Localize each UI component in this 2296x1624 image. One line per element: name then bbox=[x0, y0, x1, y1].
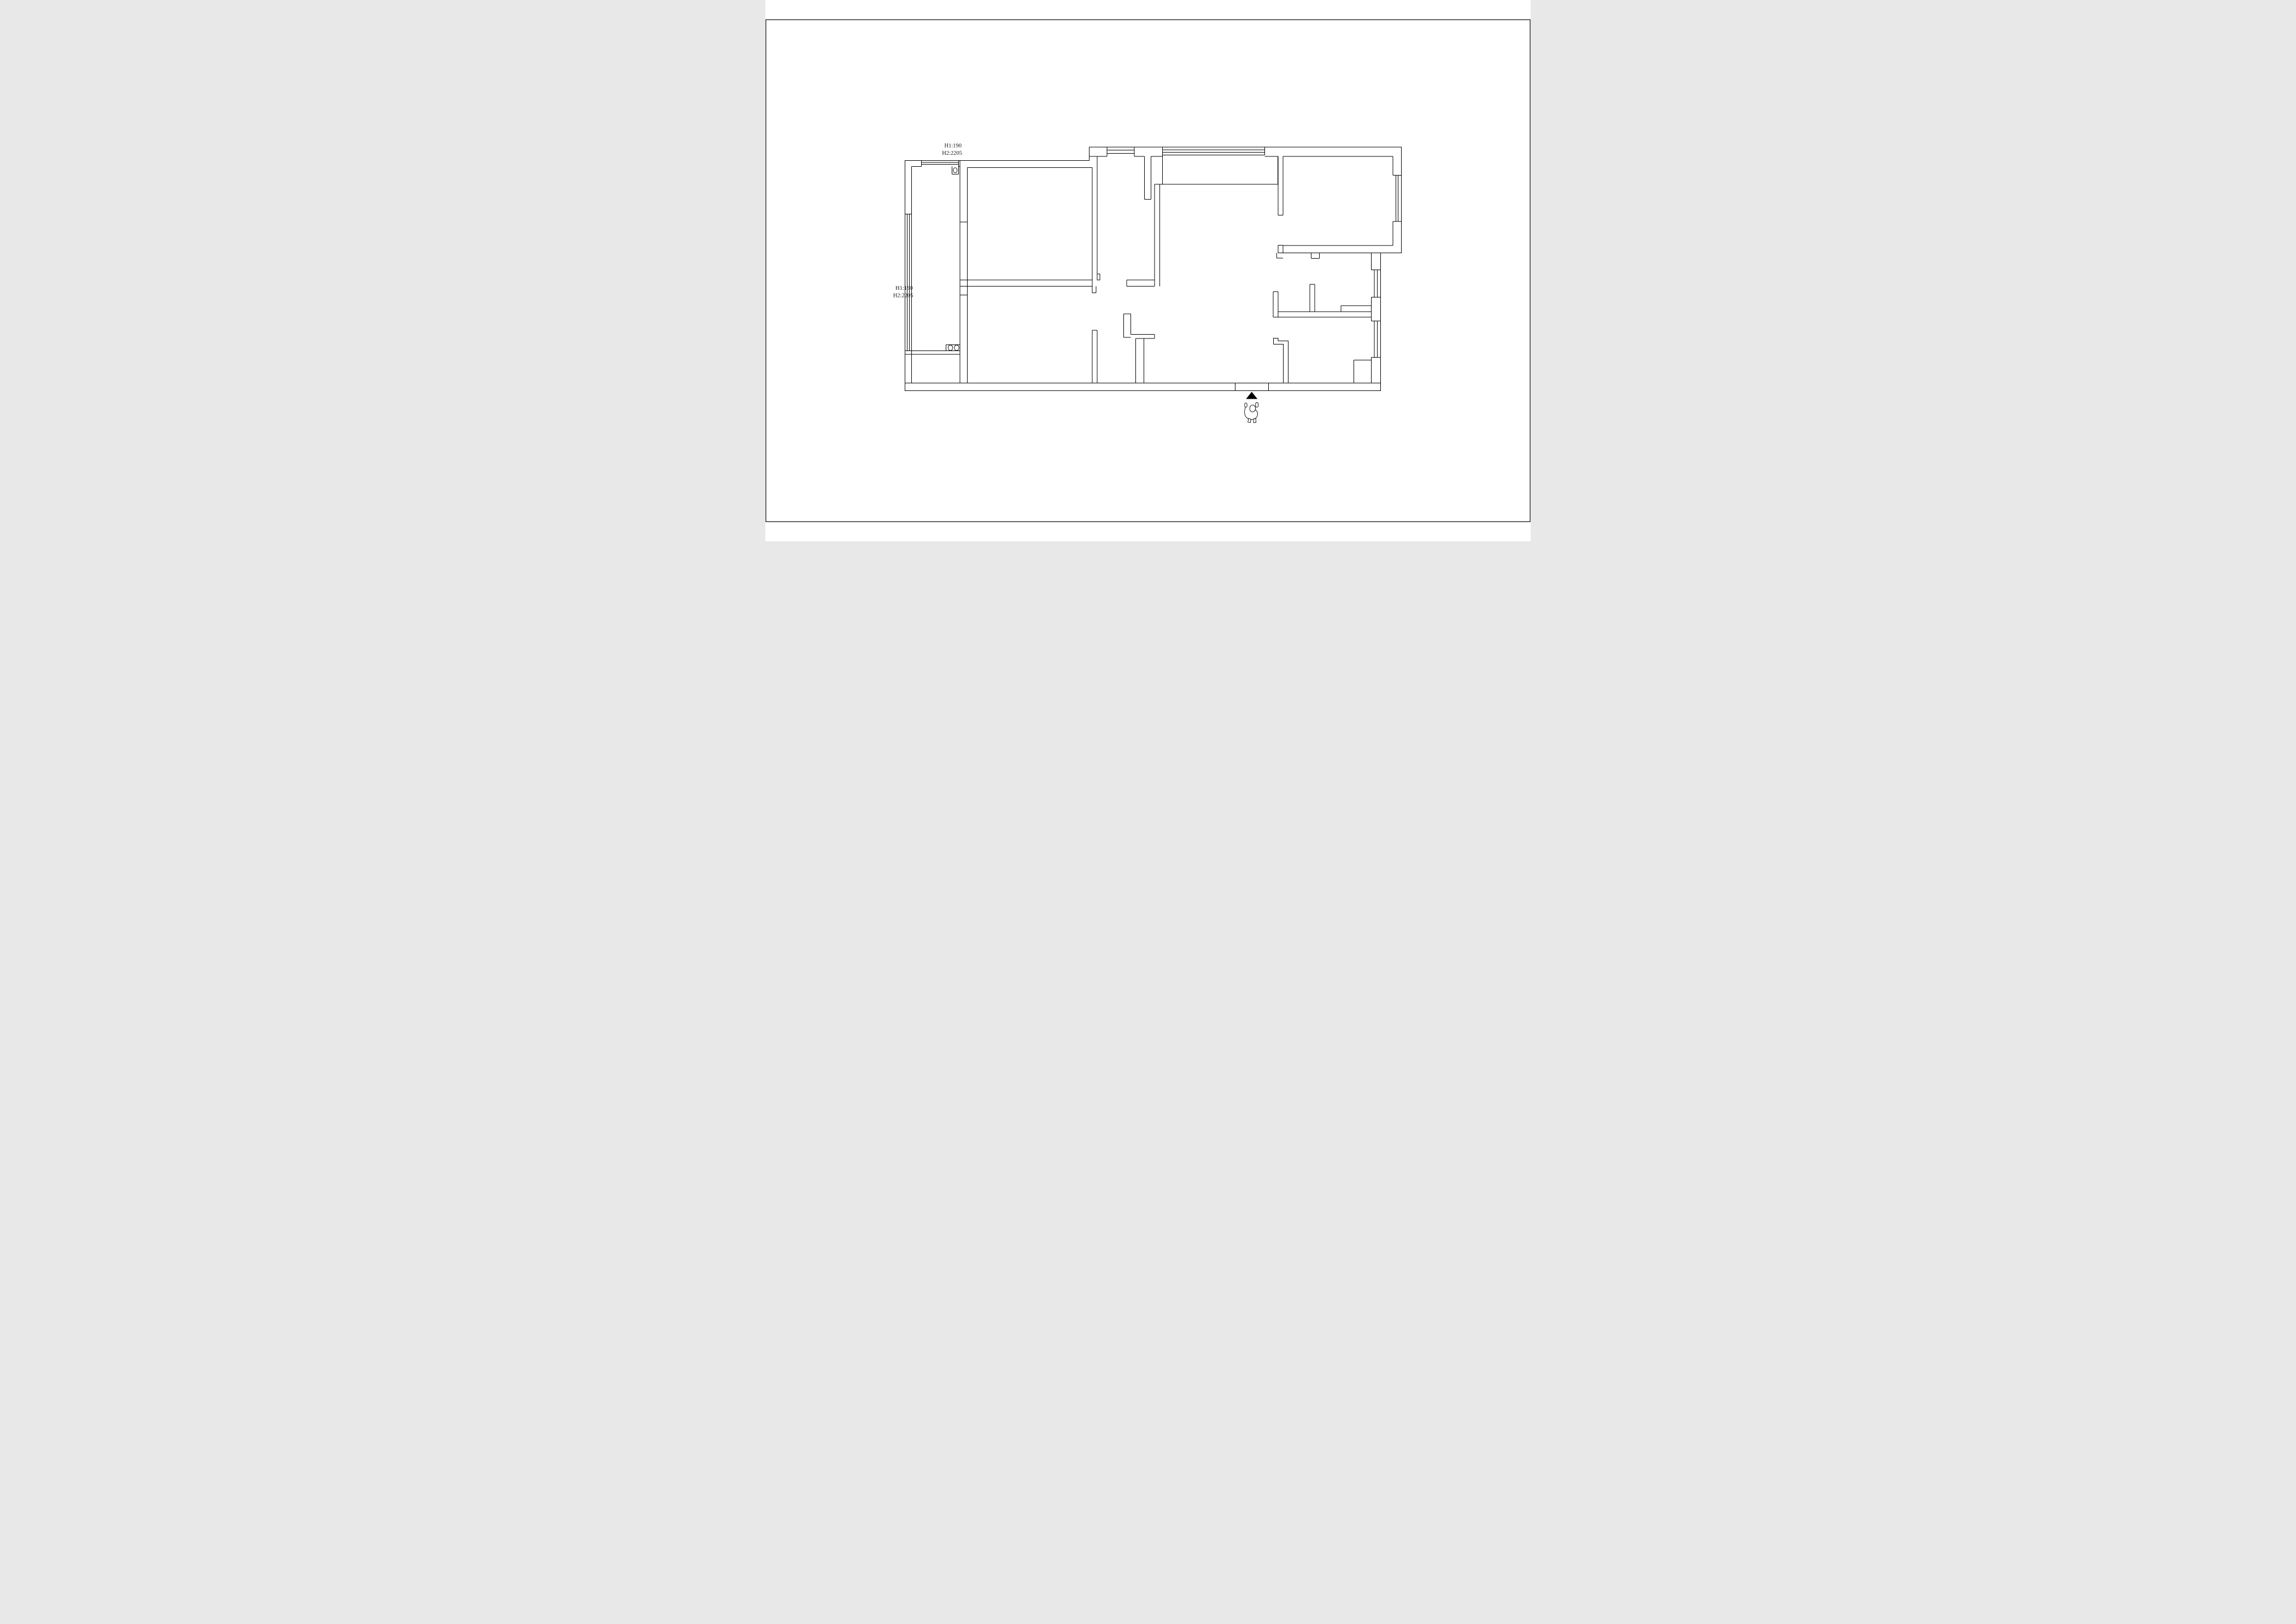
balcony-basin-circle-right bbox=[954, 345, 959, 350]
exterior-inner-lines bbox=[905, 147, 1401, 390]
person-icon bbox=[1245, 403, 1258, 423]
sheet-border bbox=[766, 20, 1530, 522]
interior-walls bbox=[905, 156, 1371, 383]
height-annotation-left: H1:190 H2:2205 bbox=[893, 285, 913, 299]
person-left-hand bbox=[1245, 403, 1247, 407]
annotation-top-line2: H2:2205 bbox=[942, 150, 962, 156]
annotation-left-line1: H1:190 bbox=[895, 285, 913, 291]
floor-plan-svg: H1:190 H2:2205 H1:190 H2:2205 bbox=[765, 0, 1531, 541]
balcony-column-circle bbox=[953, 168, 957, 173]
annotation-top-line1: H1:190 bbox=[945, 143, 962, 149]
height-annotation-top: H1:190 H2:2205 bbox=[942, 143, 962, 156]
person-head bbox=[1250, 405, 1256, 412]
person-right-hand bbox=[1256, 403, 1258, 407]
drawing-sheet: H1:190 H2:2205 H1:190 H2:2205 bbox=[765, 0, 1531, 541]
person-left-leg bbox=[1248, 418, 1251, 422]
entrance-triangle-icon bbox=[1246, 392, 1257, 399]
outer-wall-outline bbox=[905, 147, 1401, 390]
balcony-basin-circle-left bbox=[948, 345, 952, 350]
annotation-left-line2: H2:2205 bbox=[893, 293, 913, 299]
person-right-leg bbox=[1254, 418, 1256, 423]
